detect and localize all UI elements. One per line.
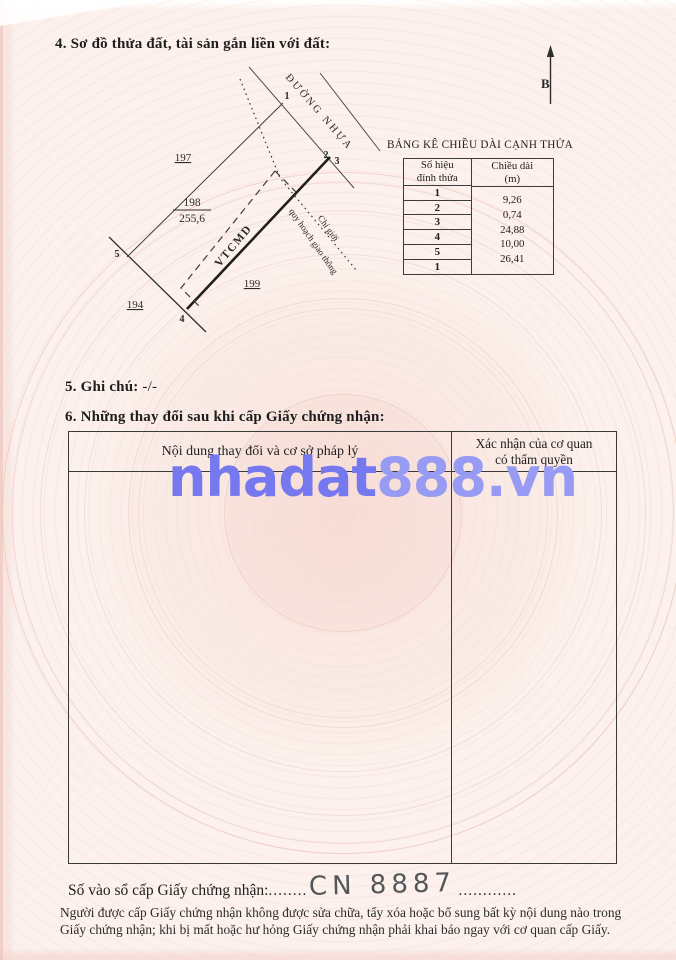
- vertex-cell: 1: [404, 260, 471, 274]
- vertex-cell: 3: [404, 215, 471, 230]
- parcel-diagram: B ĐƯỜNG NHỰA 1 2 3 4 5 197 199 194 198 2…: [0, 0, 676, 360]
- section4-title: 4. Sơ đồ thửa đất, tài sản gắn liền với …: [55, 36, 485, 53]
- footer-line-1: Người được cấp Giấy chứng nhận không đượ…: [60, 904, 626, 921]
- length-column-header: Chiều dài (m): [472, 159, 553, 187]
- vertex-cell: 5: [404, 245, 471, 260]
- neighbor-parcel-199: 199: [244, 278, 261, 290]
- svg-text:B: B: [541, 76, 550, 91]
- vertex-cell: 1: [404, 186, 471, 201]
- leader-dots: ............: [458, 882, 517, 899]
- certificate-page: 4. Sơ đồ thửa đất, tài sản gắn liền với …: [0, 0, 676, 960]
- north-arrow-icon: B: [541, 45, 554, 104]
- registry-label: Số vào sổ cấp Giấy chứng nhận:: [68, 882, 268, 899]
- leader-dots: ........: [268, 882, 307, 899]
- parcel-edge-5-1: [127, 103, 283, 257]
- setback-dashed-outline: [181, 171, 296, 308]
- registry-number-line: Số vào sổ cấp Giấy chứng nhận:........CN…: [68, 872, 608, 902]
- planning-boundary-dotted-line: [240, 79, 357, 271]
- neighbor-parcel-197: 197: [175, 152, 192, 164]
- length-value: 24,88: [472, 223, 553, 237]
- vertex-label-2: 2: [324, 150, 329, 161]
- changes-content-cell: [69, 472, 452, 863]
- length-value: 26,41: [472, 252, 553, 266]
- road-outer-edge: [320, 73, 380, 151]
- vertex-label-5: 5: [115, 249, 120, 260]
- vertex-cell: 4: [404, 230, 471, 245]
- watermark-text-2: 888.vn: [376, 446, 577, 509]
- vertex-column-header: Số hiệu đỉnh thửa: [404, 159, 471, 186]
- length-table-length-column: Chiều dài (m) 9,26 0,74 24,88 10,00 26,4…: [472, 159, 553, 274]
- length-value: 9,26: [472, 193, 553, 207]
- road-label: ĐƯỜNG NHỰA: [283, 71, 356, 152]
- section5-note: 5. Ghi chú: -/-: [65, 379, 365, 396]
- length-table-vertex-column: Số hiệu đỉnh thửa 1 2 3 4 5 1: [404, 159, 472, 274]
- vertex-label-4: 4: [180, 314, 185, 325]
- changes-table-body: [69, 472, 616, 863]
- neighbor-parcel-194: 194: [127, 299, 144, 311]
- parcel-number-area: 198 255,6: [173, 197, 211, 225]
- footer-line-2: Giấy chứng nhận; khi bị mất hoặc hư hỏng…: [60, 921, 626, 938]
- scan-edge: [0, 0, 160, 26]
- planning-label-line1: Chỉ giới: [316, 213, 341, 243]
- section5-value: -/-: [142, 379, 157, 395]
- svg-text:198: 198: [183, 197, 201, 209]
- section6-title: 6. Những thay đổi sau khi cấp Giấy chứng…: [65, 409, 495, 426]
- vertex-cell: 2: [404, 201, 471, 216]
- length-value: 10,00: [472, 237, 553, 251]
- parcel-edge-4-5-extended: [109, 237, 206, 332]
- length-table-title: BẢNG KÊ CHIỀU DÀI CẠNH THỬA: [384, 139, 576, 151]
- svg-text:255,6: 255,6: [179, 213, 205, 225]
- vertex-label-1: 1: [285, 91, 290, 102]
- watermark-text-1: nhadat: [168, 446, 376, 509]
- footer-notice: Người được cấp Giấy chứng nhận không đượ…: [60, 904, 626, 939]
- registry-number-handwritten: CN 8887: [309, 868, 457, 902]
- length-table: Số hiệu đỉnh thửa 1 2 3 4 5 1 Chiều dài …: [403, 158, 554, 275]
- changes-confirm-cell: [452, 472, 616, 863]
- site-watermark: nhadat888.vn: [168, 451, 588, 505]
- parcel-edge-3-4: [187, 157, 330, 309]
- section5-label: 5. Ghi chú:: [65, 379, 138, 395]
- road-inner-edge: [249, 67, 354, 188]
- vertex-label-3: 3: [335, 156, 340, 167]
- length-value: 0,74: [472, 208, 553, 222]
- parcel-code-label: VTCMD: [213, 223, 255, 270]
- planning-label-line2: quy hoạch giao thông: [287, 207, 340, 277]
